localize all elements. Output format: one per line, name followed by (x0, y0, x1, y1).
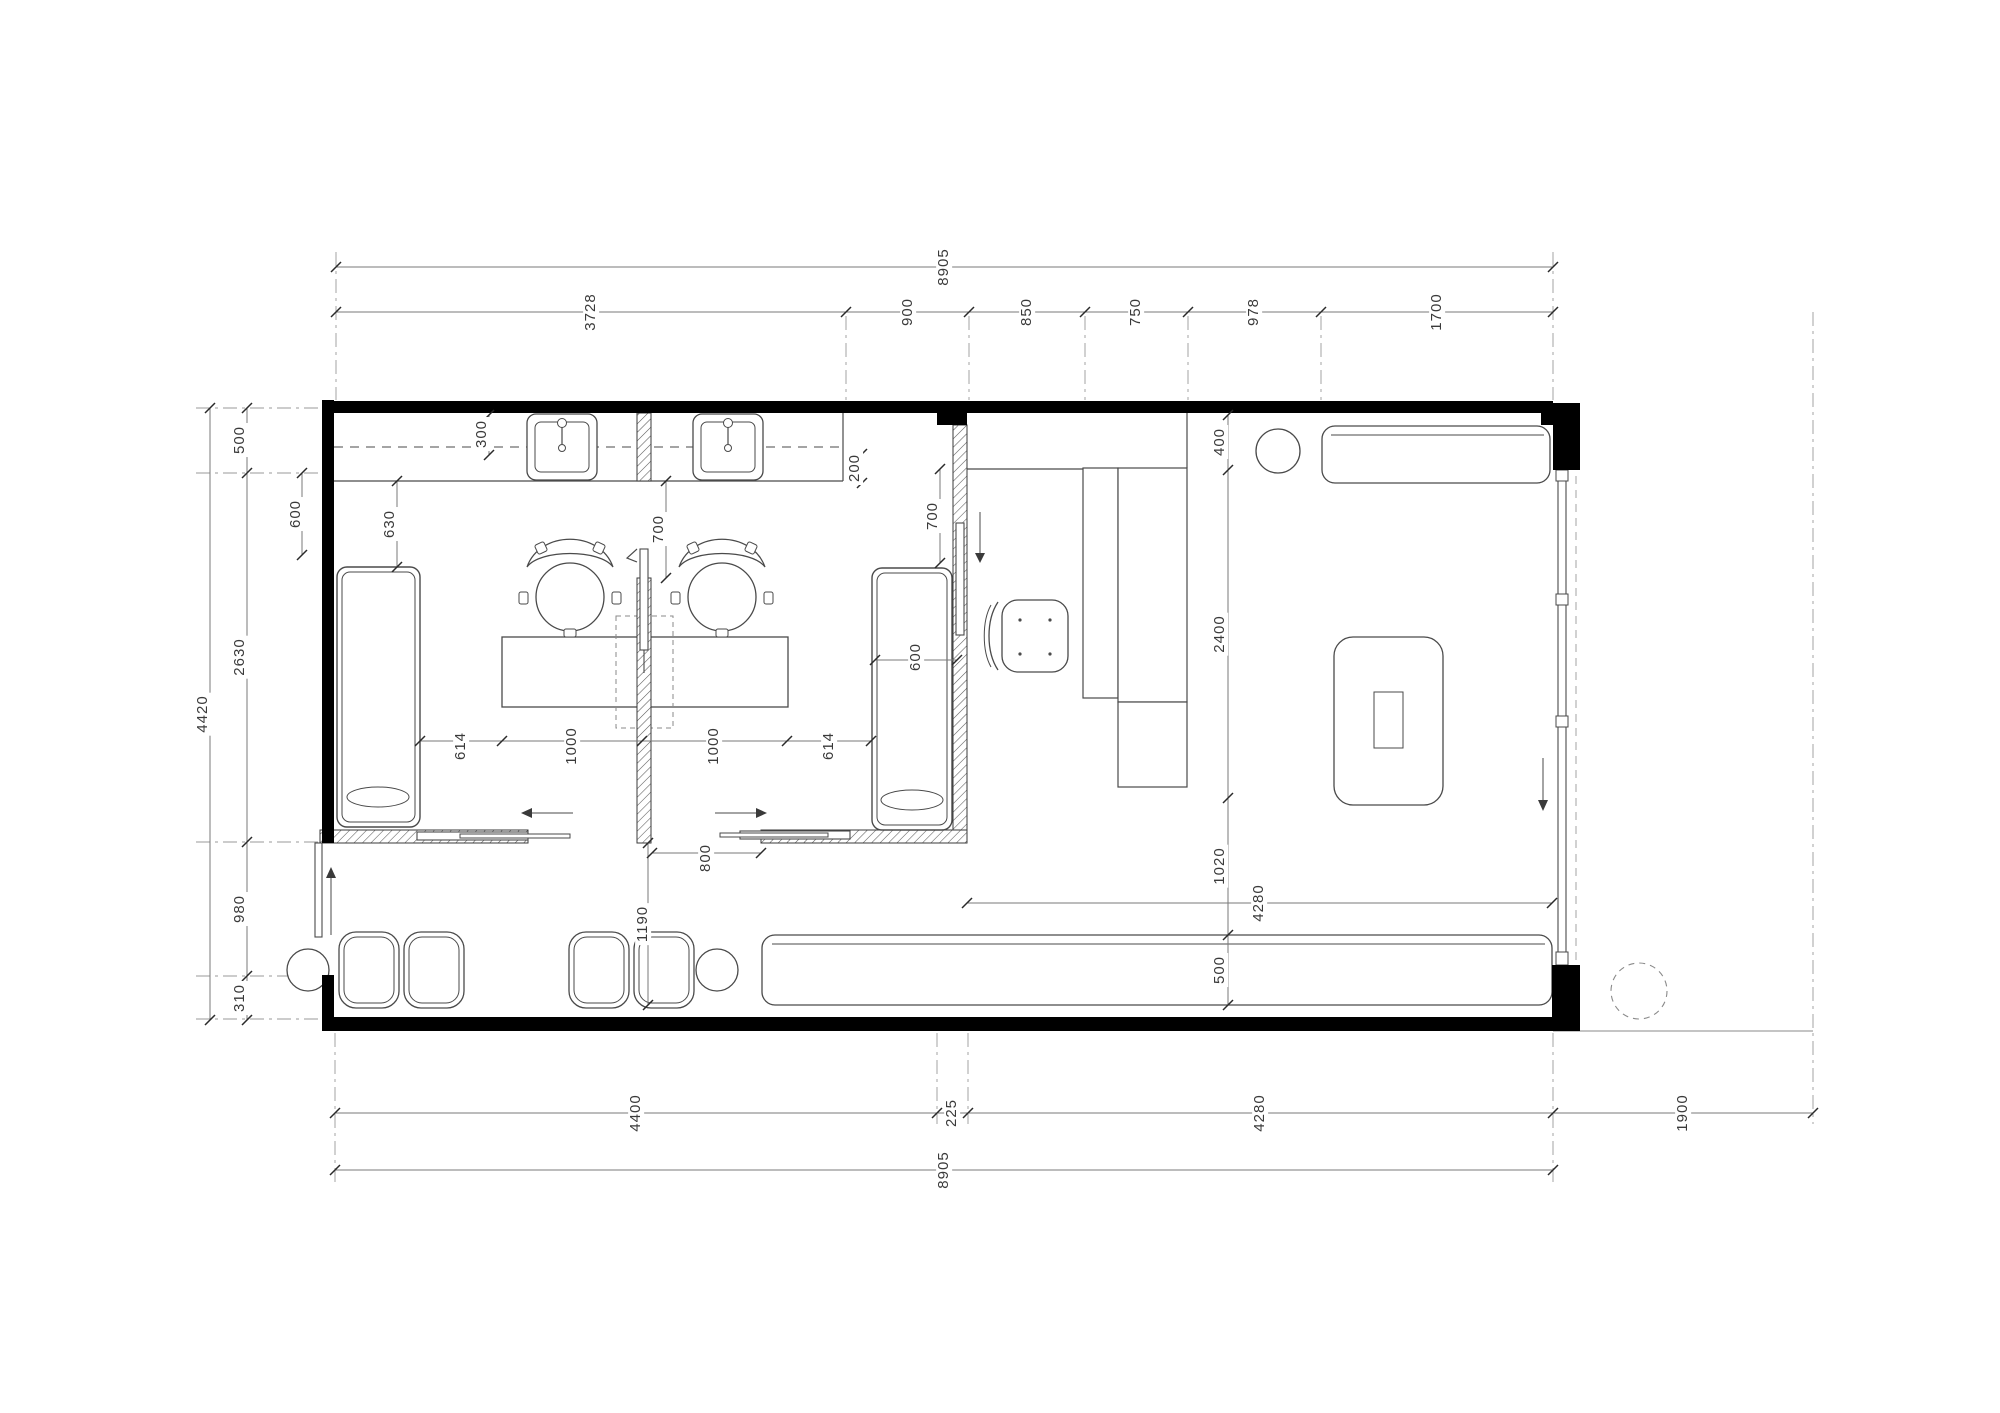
dim-label-right-2400: 2400 (1212, 612, 1228, 655)
bed-1 (337, 567, 420, 827)
coffee-table-object (1374, 692, 1403, 748)
entrance-door-leaf (315, 843, 322, 937)
dim-label-600-a: 600 (288, 497, 304, 531)
room1-sliding-leaf (460, 834, 570, 838)
bottom-bench (762, 935, 1552, 1005)
dim-label-right-400: 400 (1212, 425, 1228, 459)
waiting-area (287, 932, 738, 1008)
dim-label-top-850: 850 (1019, 295, 1035, 329)
dim-label-614-b: 614 (821, 729, 837, 763)
dim-label-top-overall: 8905 (936, 245, 952, 288)
waiting-chair-1 (339, 932, 399, 1008)
room1-door-direction-arrow (627, 549, 637, 562)
wall-right-bottom (1552, 965, 1580, 1031)
entrance-door-arrow-head (326, 867, 336, 878)
dim-label-left-overall: 4420 (195, 692, 211, 735)
dental-chair-1 (519, 539, 621, 637)
bed-2 (872, 568, 952, 830)
dim-label-4280-inner: 4280 (1251, 881, 1267, 924)
dim-label-left-310: 310 (232, 981, 248, 1015)
dim-label-right-500: 500 (1212, 953, 1228, 987)
window-slide-arrow-head (1538, 800, 1548, 811)
wall-top (322, 401, 1553, 413)
dental-chair-2 (671, 539, 773, 637)
dim-label-1000-b: 1000 (706, 724, 722, 767)
stool-top (1256, 429, 1300, 473)
sink-1 (527, 414, 597, 480)
plan-linework (0, 0, 2000, 1413)
dim-label-700-b: 700 (925, 499, 941, 533)
dim-label-left-500: 500 (232, 423, 248, 457)
window-wall (1538, 470, 1568, 965)
sink-2 (693, 414, 763, 480)
dim-label-1000-a: 1000 (564, 724, 580, 767)
dim-label-top-3728: 3728 (583, 290, 599, 333)
room2-wall-door-leaf (956, 523, 964, 635)
room2-slide-arrow-head (756, 808, 767, 818)
room1-partition-door-leaf (640, 549, 648, 650)
dim-label-630: 630 (382, 507, 398, 541)
extension-lines (196, 252, 1813, 1182)
dim-label-200: 200 (847, 451, 863, 485)
dim-label-800: 800 (698, 841, 714, 875)
dim-label-left-980: 980 (232, 892, 248, 926)
room2-door-arrow-head (975, 553, 985, 563)
waiting-stool-2 (696, 949, 738, 991)
reception-desk (1083, 468, 1187, 787)
dim-label-top-978: 978 (1246, 295, 1262, 329)
wall-bottom (322, 1017, 1553, 1031)
wall-right-top (1553, 403, 1580, 470)
wall-left-upper (322, 400, 334, 843)
dim-label-700-a: 700 (651, 512, 667, 546)
dashed-circle-marker (1611, 963, 1667, 1019)
dim-label-225: 225 (944, 1096, 960, 1130)
dim-label-4280-bottom: 4280 (1252, 1091, 1268, 1134)
dim-label-top-900: 900 (900, 295, 916, 329)
dim-label-600-b: 600 (908, 640, 924, 674)
room1-slide-arrow-head (521, 808, 532, 818)
dim-label-top-1700: 1700 (1429, 290, 1445, 333)
dim-label-bottom-overall: 8905 (936, 1148, 952, 1191)
dim-label-left-2630: 2630 (232, 635, 248, 678)
dim-label-1190: 1190 (635, 903, 651, 945)
dim-label-4400: 4400 (628, 1091, 644, 1134)
dim-label-1900: 1900 (1675, 1091, 1691, 1134)
dim-label-300: 300 (474, 417, 490, 451)
dim-label-top-750: 750 (1128, 295, 1144, 329)
waiting-chair-2 (404, 932, 464, 1008)
room2-sliding-leaf (720, 833, 828, 837)
wall-left-lower (322, 975, 334, 1031)
waiting-chair-3 (569, 932, 629, 1008)
floor-plan-sheet: 8905 3728 900 850 750 978 1700 4420 500 … (0, 0, 2000, 1413)
office-chair (984, 600, 1068, 672)
dim-label-614-a: 614 (453, 729, 469, 763)
dim-label-right-1020: 1020 (1212, 844, 1228, 887)
